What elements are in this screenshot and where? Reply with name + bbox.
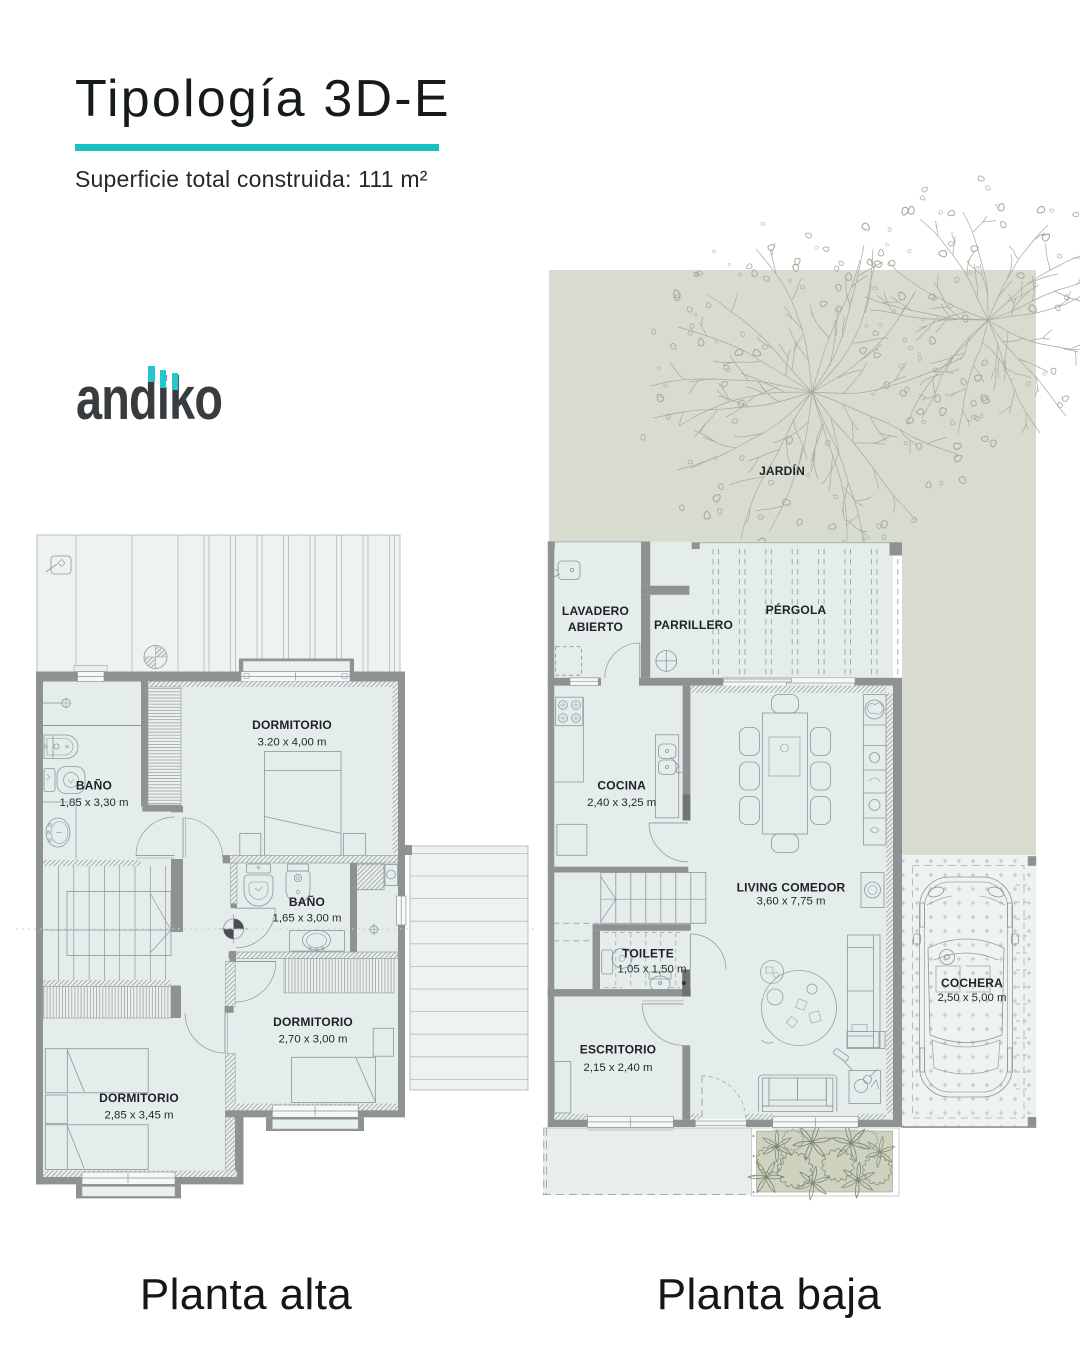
svg-text:COCINA: COCINA — [597, 779, 646, 793]
svg-text:LIVING COMEDOR: LIVING COMEDOR — [737, 881, 846, 895]
svg-text:BAÑO: BAÑO — [289, 894, 325, 909]
svg-text:PÉRGOLA: PÉRGOLA — [766, 602, 827, 617]
svg-text:Planta baja: Planta baja — [657, 1270, 882, 1319]
svg-text:DORMITORIO: DORMITORIO — [273, 1015, 353, 1029]
svg-text:2,70 x 3,00 m: 2,70 x 3,00 m — [278, 1034, 347, 1046]
svg-text:Planta alta: Planta alta — [140, 1270, 352, 1319]
svg-text:2,85 x 3,45 m: 2,85 x 3,45 m — [104, 1110, 173, 1122]
svg-text:ESCRITORIO: ESCRITORIO — [580, 1043, 656, 1057]
svg-text:1,05 x 1,50 m: 1,05 x 1,50 m — [617, 964, 686, 976]
svg-text:3.20 x 4,00 m: 3.20 x 4,00 m — [257, 737, 326, 749]
svg-text:1,85 x 3,30 m: 1,85 x 3,30 m — [59, 797, 128, 809]
svg-text:TOILETE: TOILETE — [622, 947, 674, 961]
svg-text:3,60 x 7,75 m: 3,60 x 7,75 m — [756, 896, 825, 908]
svg-text:LAVADERO: LAVADERO — [562, 604, 629, 618]
svg-text:ABIERTO: ABIERTO — [568, 620, 623, 634]
svg-text:PARRILLERO: PARRILLERO — [654, 618, 733, 632]
svg-text:JARDÍN: JARDÍN — [759, 463, 805, 478]
svg-text:COCHERA: COCHERA — [941, 976, 1003, 990]
svg-text:2,40 x 3,25 m: 2,40 x 3,25 m — [587, 797, 656, 809]
svg-text:1,65 x 3,00 m: 1,65 x 3,00 m — [272, 913, 341, 925]
svg-text:DORMITORIO: DORMITORIO — [252, 718, 332, 732]
svg-text:2,50 x 5,00 m: 2,50 x 5,00 m — [937, 992, 1006, 1004]
svg-text:2,15 x 2,40 m: 2,15 x 2,40 m — [583, 1062, 652, 1074]
svg-text:BAÑO: BAÑO — [76, 778, 112, 793]
